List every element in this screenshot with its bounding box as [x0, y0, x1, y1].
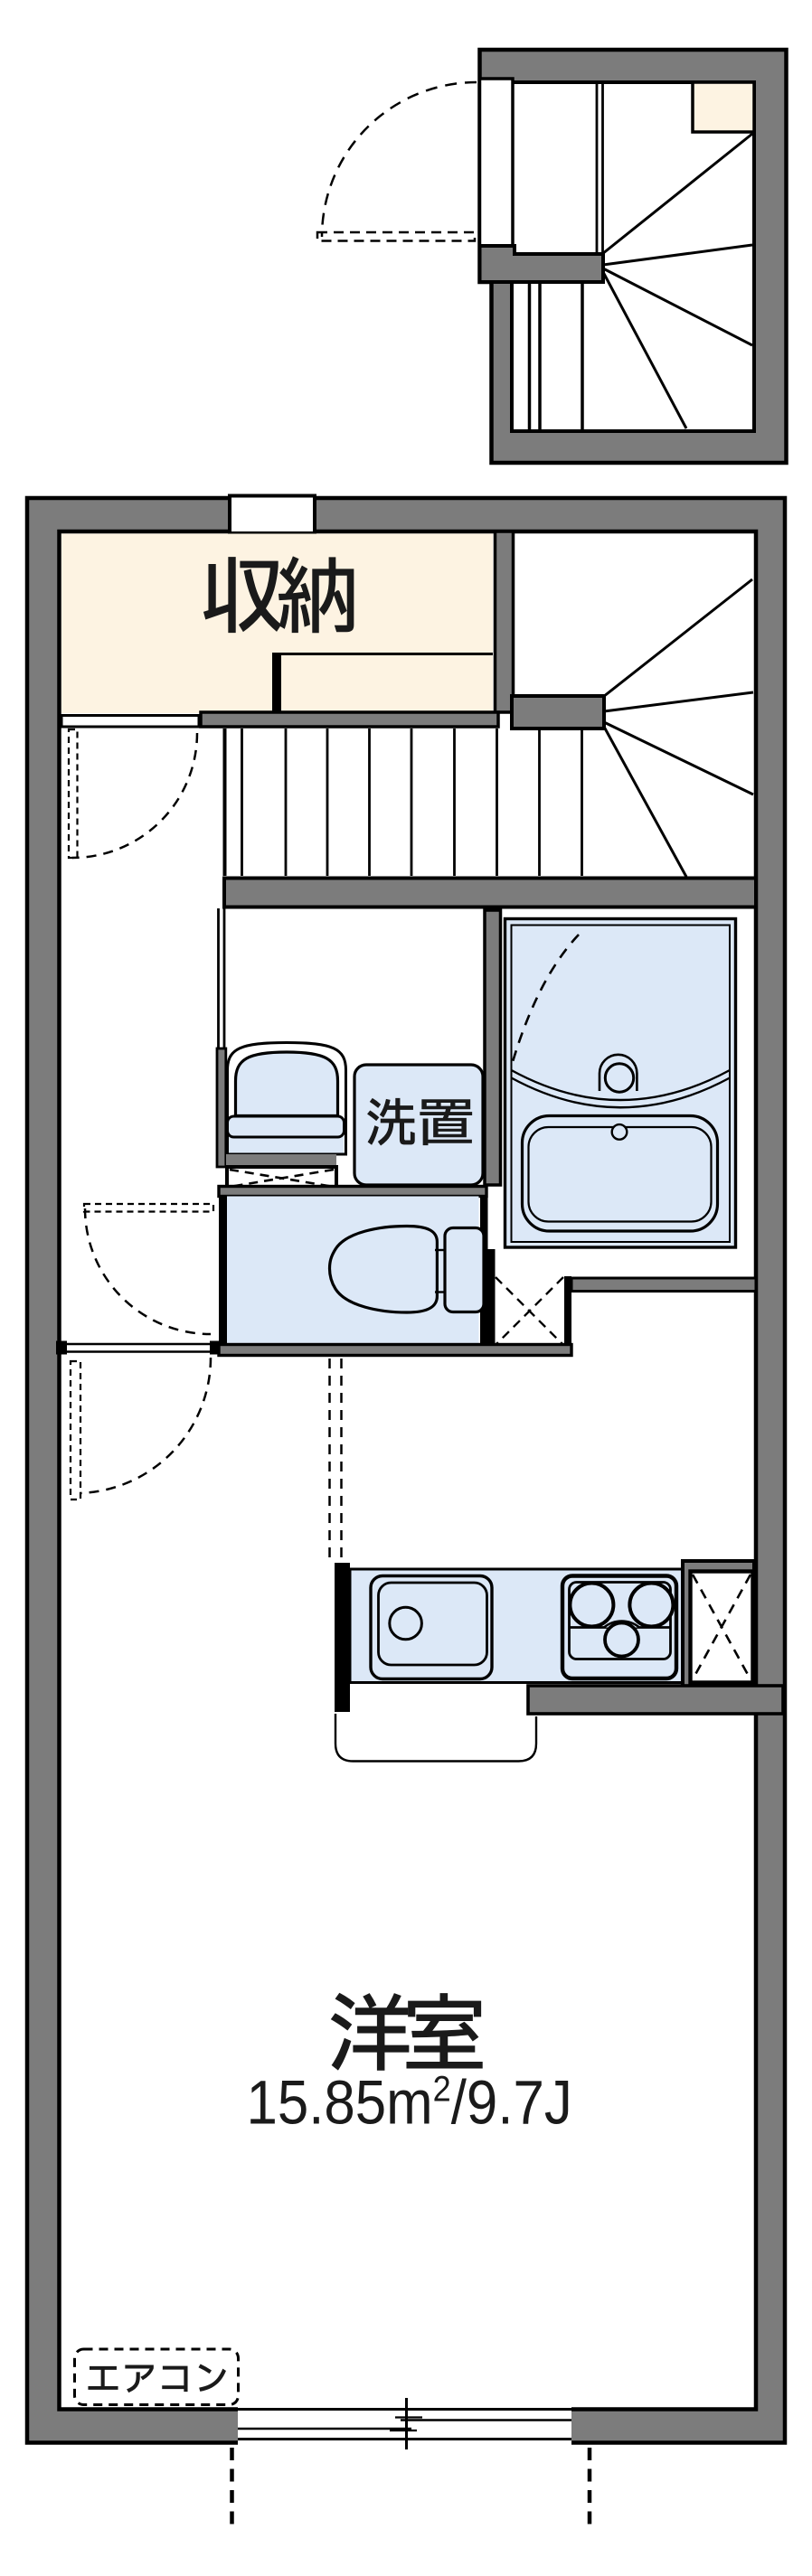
- svg-text:15.85m2/9.7J: 15.85m2/9.7J: [247, 2068, 572, 2138]
